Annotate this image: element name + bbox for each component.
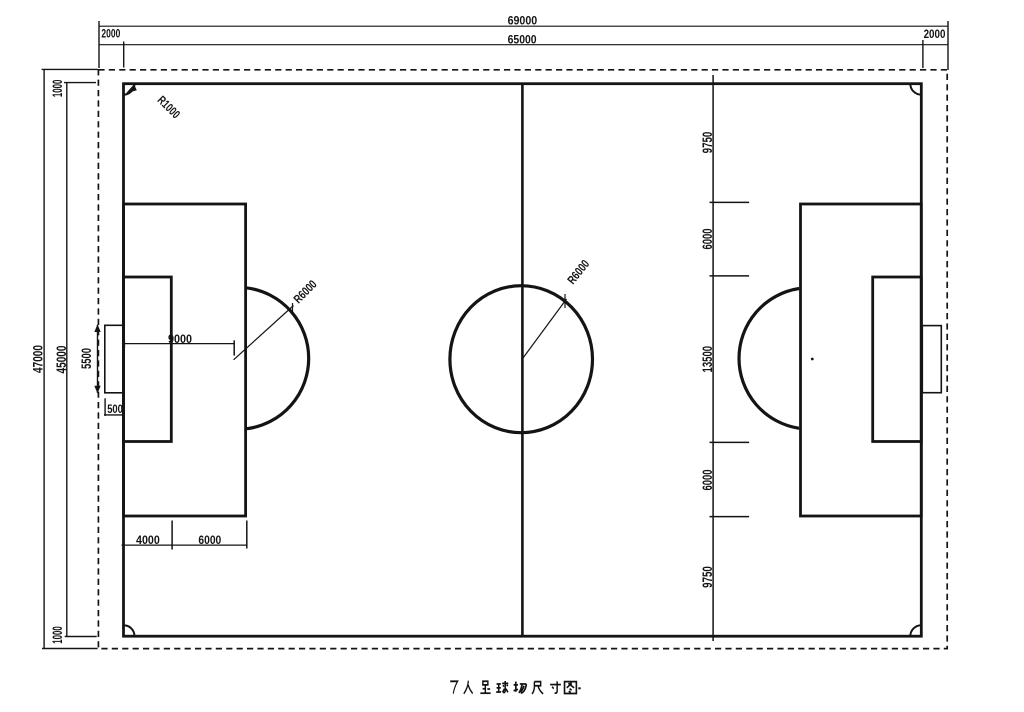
svg-text:2000: 2000 xyxy=(101,27,120,41)
svg-text:45000: 45000 xyxy=(54,346,69,374)
svg-text:5500: 5500 xyxy=(79,348,94,369)
svg-text:4000: 4000 xyxy=(136,533,160,547)
svg-text:9000: 9000 xyxy=(168,332,192,346)
svg-text:6000: 6000 xyxy=(700,470,715,491)
svg-text:69000: 69000 xyxy=(508,14,538,28)
svg-text:500: 500 xyxy=(107,402,123,416)
svg-text:2000: 2000 xyxy=(924,27,946,41)
svg-text:13500: 13500 xyxy=(700,346,715,373)
svg-text:6000: 6000 xyxy=(700,229,715,250)
svg-text:9750: 9750 xyxy=(700,132,715,154)
svg-text:6000: 6000 xyxy=(198,533,221,547)
svg-text:9750: 9750 xyxy=(700,566,715,588)
svg-text:65000: 65000 xyxy=(508,32,537,46)
svg-text:1000: 1000 xyxy=(50,626,65,644)
svg-text:47000: 47000 xyxy=(31,345,46,373)
svg-text:1000: 1000 xyxy=(50,80,65,98)
